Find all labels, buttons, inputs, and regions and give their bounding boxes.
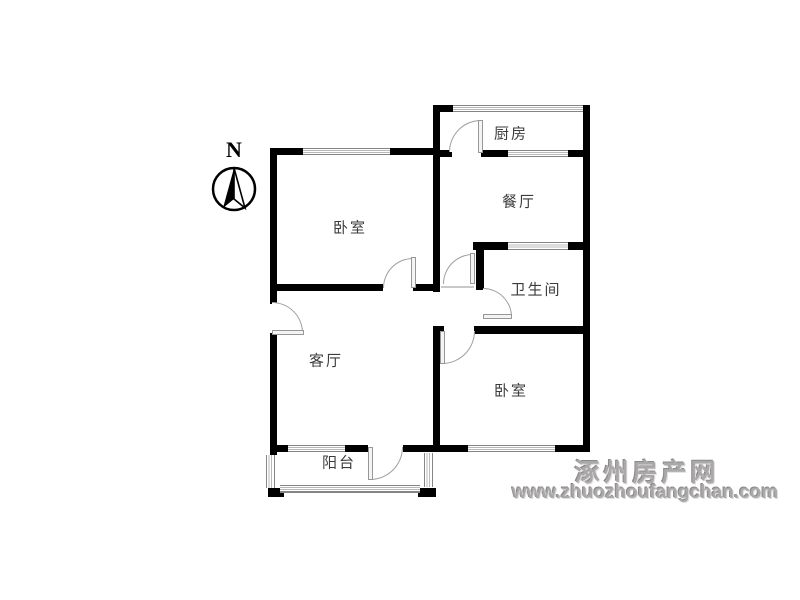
room-label-dining: 餐厅 [502, 191, 536, 212]
bedroom-se-door-arc [442, 331, 475, 364]
watermark-site-url: www.zhuozhoufangchan.com [512, 482, 778, 504]
bedroom-nw-door-leaf [411, 257, 416, 288]
window-bedroom-se-bottom [468, 445, 555, 452]
window-kitchen-top [453, 105, 583, 112]
wall-left-lower [270, 333, 277, 455]
room-label-balcony: 阳台 [322, 452, 356, 473]
balcony-door-arc [370, 447, 403, 480]
compass-needle-right [234, 168, 245, 208]
wall-balcony-corner-right [418, 488, 436, 497]
window-bedroom-nw-top [303, 148, 390, 155]
north-compass: N [204, 136, 264, 220]
window-bathroom-top [508, 242, 568, 250]
wall-kitchen-west [433, 105, 440, 292]
bedroom-nw-door-arc [383, 258, 413, 288]
room-label-living: 客厅 [309, 350, 343, 371]
entry-door-leaf [272, 330, 304, 335]
wall-left-upper [270, 148, 277, 304]
room-label-kitchen: 厨房 [494, 123, 528, 144]
window-balcony-right [424, 453, 433, 487]
window-balcony-left [266, 455, 275, 488]
balcony-door-leaf [368, 447, 373, 480]
compass-needle-left [223, 168, 234, 208]
wall-bathroom-west [476, 242, 484, 290]
window-kitchen-pass [508, 150, 568, 157]
dining-door-arc [443, 254, 473, 284]
dining-door-leaf [470, 253, 475, 284]
bathroom-door-arc [483, 288, 512, 317]
room-label-bedroom-nw: 卧室 [333, 217, 367, 238]
room-label-bathroom: 卫生间 [510, 279, 561, 300]
kitchen-door-leaf [478, 120, 483, 153]
bedroom-se-door-leaf [440, 331, 445, 364]
bathroom-door-leaf [483, 314, 512, 319]
room-label-bedroom-se: 卧室 [494, 380, 528, 401]
dining-door-sill [441, 286, 474, 288]
window-balcony-bottom [280, 485, 420, 493]
kitchen-door-arc [449, 120, 481, 152]
wall-living-east [433, 326, 440, 452]
entry-door-arc [272, 302, 303, 333]
wall-right [583, 105, 590, 452]
compass-n-letter: N [226, 137, 242, 162]
floorplan-canvas: 厨房 餐厅 卧室 卫生间 客厅 卧室 阳台 N 涿州房产网 www.zhuozh… [0, 0, 800, 600]
